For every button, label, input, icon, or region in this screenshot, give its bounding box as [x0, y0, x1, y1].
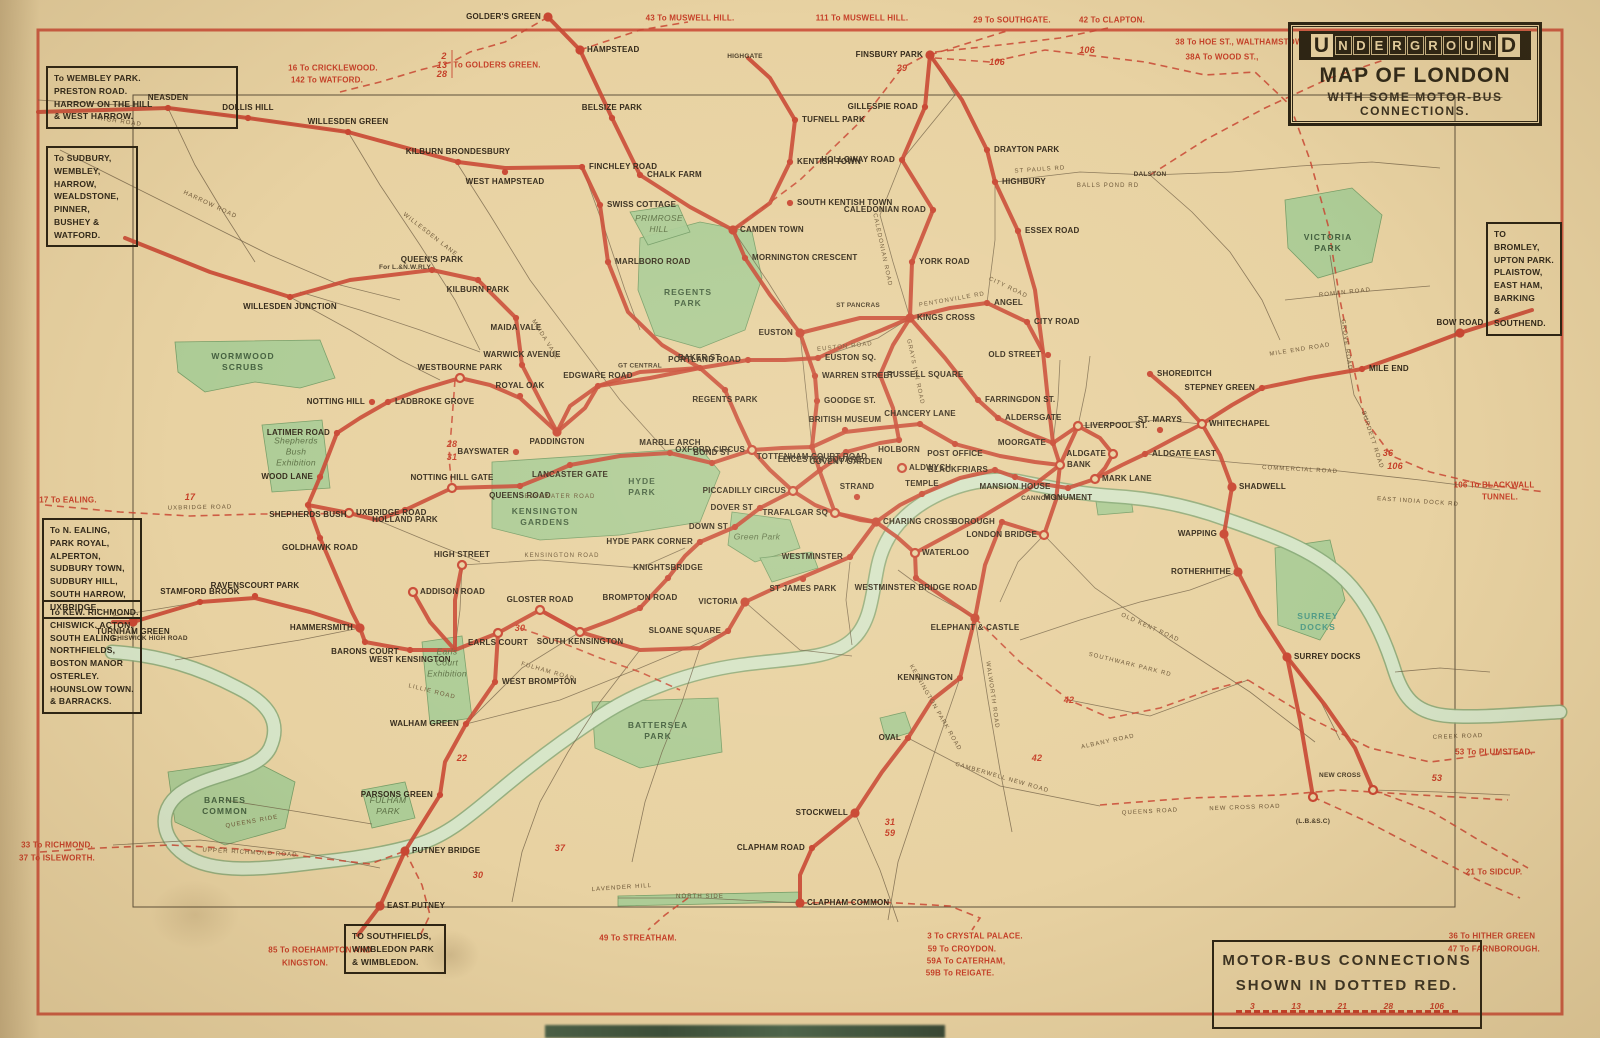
info-box-line: BUSHEY & — [54, 216, 130, 229]
info-box-line: PARK ROYAL, — [50, 537, 134, 550]
legend-line-2: SHOWN IN DOTTED RED. — [1222, 977, 1472, 994]
info-box-line: PRESTON ROAD. — [54, 85, 230, 98]
info-box-line: BARKING — [1494, 292, 1554, 305]
map-title-block: UNDERGROUND MAP OF LONDON WITH SOME MOTO… — [1288, 22, 1542, 126]
logo-letter: R — [1389, 36, 1406, 55]
info-box-line: BROMLEY, — [1494, 241, 1554, 254]
logo-letter: D — [1353, 36, 1370, 55]
logo-letter: D — [1497, 33, 1521, 58]
logo-letter: U — [1461, 36, 1478, 55]
info-box: TOBROMLEY,UPTON PARK.PLAISTOW,EAST HAM,B… — [1486, 222, 1562, 336]
info-box-line: & WIMBLEDON. — [352, 956, 438, 969]
info-box-line: WEMBLEY, — [54, 165, 130, 178]
info-box-line: HOUNSLOW TOWN. — [50, 683, 134, 696]
logo-letter: R — [1425, 36, 1442, 55]
info-box: To SUDBURY,WEMBLEY,HARROW,WEALDSTONE,PIN… — [46, 146, 138, 247]
info-box-line: SOUTHEND. — [1494, 317, 1554, 330]
map-title: MAP OF LONDON — [1299, 64, 1531, 88]
info-boxes-layer: To WEMBLEY PARK.PRESTON ROAD.HARROW ON T… — [0, 0, 1600, 1038]
info-box: To KEW. RICHMOND.CHISWICK. ACTON.SOUTH E… — [42, 600, 142, 714]
info-box-line: PINNER, — [54, 203, 130, 216]
info-box-line: NORTHFIELDS, — [50, 644, 134, 657]
info-box-line: SUDBURY TOWN, — [50, 562, 134, 575]
info-box-line: WATFORD. — [54, 229, 130, 242]
underground-logo: UNDERGROUND — [1299, 31, 1531, 60]
info-box-line: WIMBLEDON PARK — [352, 943, 438, 956]
info-box-line: UPTON PARK. — [1494, 254, 1554, 267]
info-box-line: SOUTH HARROW, — [50, 588, 134, 601]
legend-line-1: MOTOR-BUS CONNECTIONS — [1222, 952, 1472, 969]
info-box-line: TO — [1494, 228, 1554, 241]
info-box-line: & — [1494, 305, 1554, 318]
info-box-line: PLAISTOW, — [1494, 266, 1554, 279]
info-box-line: OSTERLEY. — [50, 670, 134, 683]
info-box-line: WEALDSTONE, — [54, 190, 130, 203]
info-box-line: SUDBURY HILL, — [50, 575, 134, 588]
scan-artifact-strip — [545, 1025, 945, 1038]
logo-letter: N — [1479, 36, 1496, 55]
map-subtitle-1: WITH SOME MOTOR-BUS — [1299, 90, 1531, 104]
info-box-line: ALPERTON, — [50, 550, 134, 563]
logo-letter: U — [1310, 33, 1334, 58]
info-box-line: To KEW. RICHMOND. — [50, 606, 134, 619]
map-subtitle-2: CONNECTIONS. — [1299, 104, 1531, 118]
info-box-line: SOUTH EALING. — [50, 632, 134, 645]
info-box-line: & BARRACKS. — [50, 695, 134, 708]
logo-letter: N — [1335, 36, 1352, 55]
info-box-line: & WEST HARROW. — [54, 110, 230, 123]
info-box: To WEMBLEY PARK.PRESTON ROAD.HARROW ON T… — [46, 66, 238, 129]
logo-letter: E — [1371, 36, 1388, 55]
info-box-line: TO SOUTHFIELDS, — [352, 930, 438, 943]
logo-letter: O — [1443, 36, 1460, 55]
info-box-line: To WEMBLEY PARK. — [54, 72, 230, 85]
info-box-line: EAST HAM, — [1494, 279, 1554, 292]
info-box-line: BOSTON MANOR — [50, 657, 134, 670]
info-box-line: To SUDBURY, — [54, 152, 130, 165]
legend-route-numbers: 3132128106 — [1236, 1001, 1458, 1013]
legend-dashed-line — [1236, 1010, 1458, 1013]
logo-letter: G — [1407, 36, 1424, 55]
info-box-line: HARROW ON THE HILL — [54, 98, 230, 111]
info-box: TO SOUTHFIELDS,WIMBLEDON PARK& WIMBLEDON… — [344, 924, 446, 974]
info-box-line: CHISWICK. ACTON. — [50, 619, 134, 632]
scanned-map-page: NEASDENDOLLIS HILLWILLESDEN GREENKILBURN… — [0, 0, 1600, 1038]
legend-box: MOTOR-BUS CONNECTIONS SHOWN IN DOTTED RE… — [1212, 940, 1482, 1029]
info-box-line: HARROW, — [54, 178, 130, 191]
info-box-line: To N. EALING, — [50, 524, 134, 537]
